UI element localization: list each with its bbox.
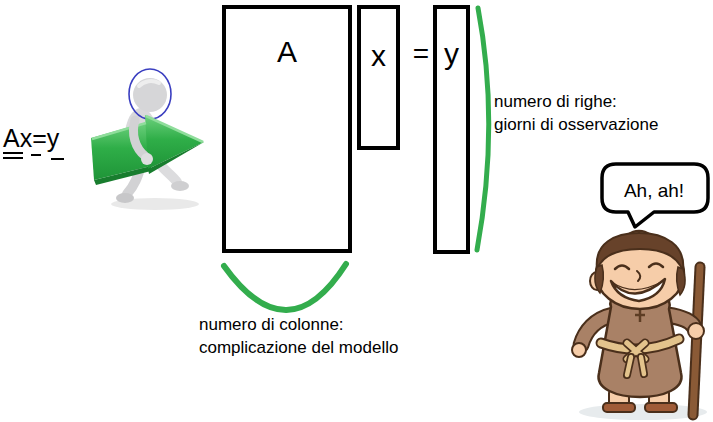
columns-annotation-line1: numero di colonne: bbox=[199, 314, 398, 337]
vector-y-underline bbox=[51, 158, 64, 160]
equation-label: Ax=y bbox=[3, 126, 59, 151]
monk-staff bbox=[693, 267, 700, 415]
rows-annotation: numero di righe: giorni di osservazione bbox=[494, 91, 658, 136]
person-with-arrow-illustration bbox=[85, 58, 210, 213]
monk-head bbox=[590, 231, 685, 309]
green-arrow-icon bbox=[91, 115, 204, 185]
matrix-a-box: A bbox=[222, 5, 352, 253]
vector-x-underline bbox=[31, 154, 41, 156]
matrix-a-double-underline-top bbox=[3, 152, 23, 154]
speech-bubble-text: Ah, ah! bbox=[600, 181, 708, 202]
columns-annotation: numero di colonne: complicazione del mod… bbox=[199, 314, 398, 359]
vector-y-letter: y bbox=[444, 39, 459, 250]
vector-y-box: y bbox=[433, 5, 470, 254]
columns-brace-curve bbox=[215, 255, 360, 320]
rows-annotation-line2: giorni di osservazione bbox=[494, 114, 658, 137]
vector-x-box: x bbox=[357, 5, 400, 150]
vector-x-letter: x bbox=[371, 41, 386, 146]
columns-annotation-line2: complicazione del modello bbox=[199, 337, 398, 360]
columns-brace-path bbox=[224, 264, 346, 310]
rows-brace-path bbox=[477, 8, 489, 250]
diagram-canvas: Ax=y bbox=[0, 0, 713, 422]
matrix-a-double-underline-bottom bbox=[3, 157, 23, 159]
rows-annotation-line1: numero di righe: bbox=[494, 91, 658, 114]
matrix-a-letter: A bbox=[277, 37, 297, 249]
monk-illustration bbox=[565, 225, 713, 422]
